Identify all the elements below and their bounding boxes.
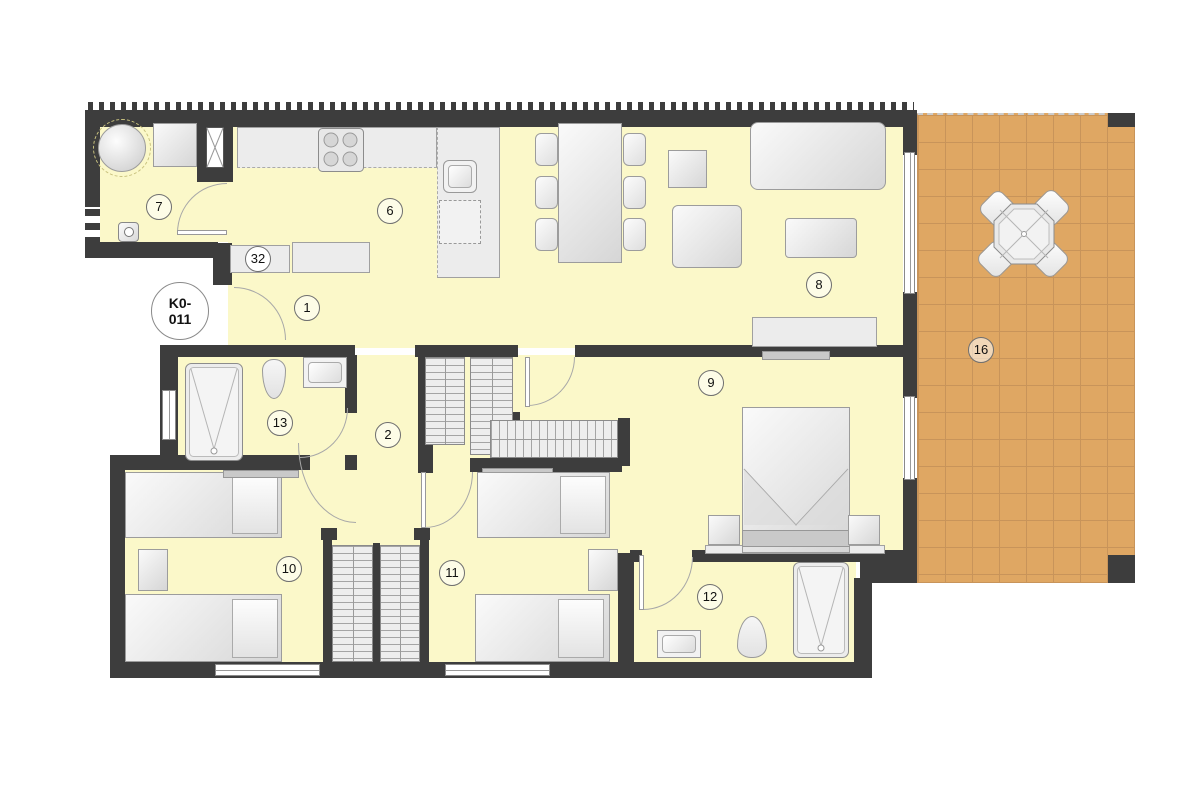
- wall-ensuite-right: [854, 578, 872, 678]
- tv: [762, 351, 830, 360]
- door-leaf: [639, 555, 644, 610]
- wall-hall2-corner: [418, 445, 433, 473]
- door-leaf: [421, 472, 426, 528]
- window-bedroom9-terrace: [904, 396, 915, 480]
- tv-sideboard: [752, 317, 877, 347]
- room-label-hall-entry: 1: [294, 295, 320, 321]
- bathroom-sink: [657, 630, 701, 658]
- wall-bedroom11-ensuite: [618, 553, 634, 665]
- nightstand: [848, 515, 880, 545]
- dining-chair: [535, 133, 558, 166]
- wall-ensuite-bottom: [620, 662, 870, 678]
- room-label-bedroom-master: 9: [698, 370, 724, 396]
- wall-shaft-left: [197, 127, 206, 172]
- dining-chair: [623, 133, 646, 166]
- room-label-cabinet: 32: [245, 246, 271, 272]
- terrace-pillar-top: [1108, 113, 1135, 127]
- room-label-living: 8: [806, 272, 832, 298]
- room-label-kitchen: 6: [377, 198, 403, 224]
- wall-wardrobe-left: [323, 538, 332, 664]
- nightstand: [708, 515, 740, 545]
- floor-plan: 1 2 6 7 8 9 10 11 12 13 16 32 K0- 011: [0, 0, 1200, 800]
- bed-headboard: [223, 470, 299, 478]
- wall-utility-bottom: [85, 242, 218, 258]
- terrace-table: [992, 202, 1056, 266]
- shower: [793, 562, 849, 658]
- nightstand: [138, 549, 168, 591]
- bed-pillow: [232, 599, 278, 658]
- wall-hatch-top: [88, 102, 914, 110]
- coffee-table: [785, 218, 857, 258]
- unit-id-line1: K0-: [152, 295, 208, 311]
- wall-bottom: [110, 662, 640, 678]
- duct-shaft: [206, 127, 224, 168]
- bed-pillow: [558, 599, 604, 658]
- bed-pillow: [560, 476, 606, 534]
- door-leaf: [177, 230, 227, 235]
- unit-id-label: K0- 011: [151, 282, 209, 340]
- dining-table: [558, 123, 622, 263]
- wardrobe: [380, 545, 420, 662]
- unit-id-line2: 011: [152, 311, 208, 327]
- bed-pillow: [232, 476, 278, 534]
- side-table: [668, 150, 707, 188]
- window-living-terrace: [904, 152, 915, 294]
- wall-bedroom9-west: [618, 418, 630, 466]
- kitchen-sink: [443, 160, 477, 193]
- stove: [318, 128, 364, 172]
- bed-blanket-fold: [742, 467, 850, 531]
- terrace-pillar-bottom: [1108, 555, 1135, 583]
- room-label-hall-inner: 2: [375, 422, 401, 448]
- terrace-floor: [917, 113, 1135, 583]
- door-leaf: [525, 357, 530, 407]
- washing-machine: [153, 123, 197, 167]
- wall-wardrobe-right: [420, 538, 429, 664]
- dining-chair: [535, 176, 558, 209]
- wardrobe: [425, 357, 465, 445]
- wall-east-2: [903, 292, 917, 398]
- shower: [185, 363, 243, 461]
- sideboard: [292, 242, 370, 273]
- dishwasher: [439, 200, 481, 244]
- wall-shaft-right: [224, 127, 233, 172]
- nightstand: [588, 549, 618, 591]
- wall-mid-center: [415, 345, 518, 357]
- room-label-bedroom-left: 10: [276, 556, 302, 582]
- room-label-bedroom-middle: 11: [439, 560, 465, 586]
- room-label-bathroom-main: 13: [267, 410, 293, 436]
- window-bathroom13: [162, 390, 176, 440]
- floor-drain: [118, 222, 139, 242]
- armchair: [672, 205, 742, 268]
- dining-chair: [623, 176, 646, 209]
- room-label-terrace: 16: [968, 337, 994, 363]
- room-label-bathroom-ensuite: 12: [697, 584, 723, 610]
- window-bedroom11: [445, 664, 550, 676]
- wall-east-1: [903, 127, 917, 155]
- wall-shaft-bottom: [197, 168, 233, 182]
- sofa: [750, 122, 886, 190]
- room-label-utility: 7: [146, 194, 172, 220]
- bed-headboard: [742, 530, 850, 547]
- wall-left-lower: [110, 455, 125, 678]
- window-bedroom10: [215, 664, 320, 676]
- closet-rail: [490, 420, 618, 458]
- wall-wardrobe-mid: [373, 543, 380, 664]
- dining-chair: [535, 218, 558, 251]
- wall-closet-left: [418, 355, 425, 445]
- wardrobe: [332, 545, 373, 662]
- bathroom-sink: [303, 357, 347, 388]
- dining-chair: [623, 218, 646, 251]
- wall-east-3: [903, 478, 917, 583]
- wall-mid-left: [160, 345, 355, 357]
- boiler: [98, 124, 146, 172]
